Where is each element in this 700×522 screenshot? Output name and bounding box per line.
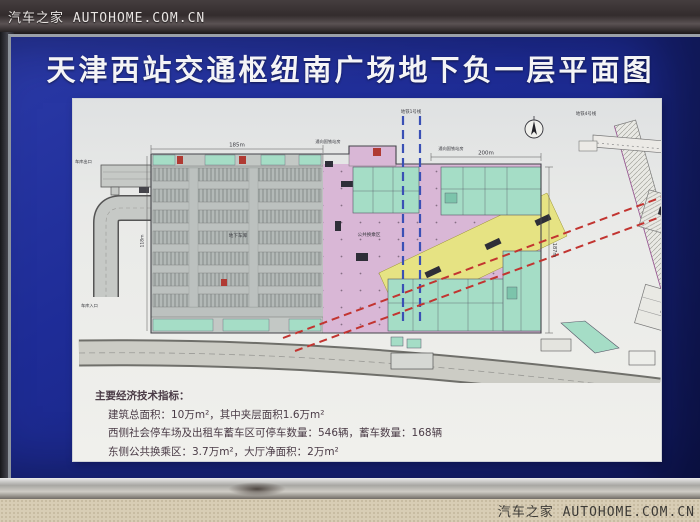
watermark-bottom-right: 汽车之家 AUTOHOME.COM.CN — [498, 501, 695, 520]
label-garage-entrance: 车库入口 — [81, 302, 98, 309]
indicator-line-total-area: 建筑总面积：10万m²，其中夹层面积1.6万m² — [95, 406, 635, 425]
underground-parking-garage — [151, 154, 323, 333]
ledge-smudge — [228, 482, 286, 496]
south-road — [79, 353, 659, 383]
label-metro-line1: 地铁1号线 — [401, 108, 422, 115]
compass-icon — [525, 116, 543, 138]
svg-text:118m: 118m — [140, 235, 146, 248]
garage-entrance-ramp — [106, 208, 151, 297]
watermark-top-left: 汽车之家 AUTOHOME.COM.CN — [8, 7, 205, 26]
metal-ledge — [0, 478, 700, 499]
dimension-200m: 200m — [431, 151, 541, 162]
indicator-line-transfer: 东侧公共换乘区：3.7万m²，大厅净面积：2万m² — [95, 443, 635, 462]
svg-text:200m: 200m — [478, 151, 494, 157]
label-garage: 地下车库 — [229, 232, 248, 239]
dimension-185m: 185m — [151, 143, 323, 154]
board-title: 天津西站交通枢纽南广场地下负一层平面图 — [11, 47, 690, 89]
floor-plan-panel: 185m 200m 187m 118m — [73, 99, 661, 461]
east-rail-corridors — [579, 120, 661, 338]
label-metro-line4: 地铁4号线 — [576, 110, 597, 117]
indicators-heading: 主要经济技术指标： — [95, 387, 635, 406]
label-garage-exit: 车库出口 — [75, 158, 92, 165]
dimension-187m: 187m — [545, 167, 557, 333]
station-photo-scene: 汽车之家 AUTOHOME.COM.CN 天津西站交通枢纽南广场地下负一层平面图 — [0, 0, 700, 522]
technical-indicators: 主要经济技术指标： 建筑总面积：10万m²，其中夹层面积1.6万m² 西侧社会停… — [95, 387, 635, 461]
label-to-rail-1: 通向国铁站房 — [315, 138, 340, 145]
label-to-rail-2: 通向国铁站房 — [438, 145, 463, 152]
svg-text:187m: 187m — [551, 243, 557, 258]
floor-plan-drawing: 185m 200m 187m 118m — [73, 101, 661, 383]
information-board: 天津西站交通枢纽南广场地下负一层平面图 — [8, 34, 700, 478]
floor-strip: 汽车之家 AUTOHOME.COM.CN — [0, 499, 700, 522]
indicator-line-parking: 西侧社会停车场及出租车蓄车区可停车数量：546辆，蓄车数量：168辆 — [95, 424, 635, 443]
label-transfer-hall: 公共换乘区 — [358, 231, 381, 238]
svg-text:185m: 185m — [229, 143, 245, 149]
